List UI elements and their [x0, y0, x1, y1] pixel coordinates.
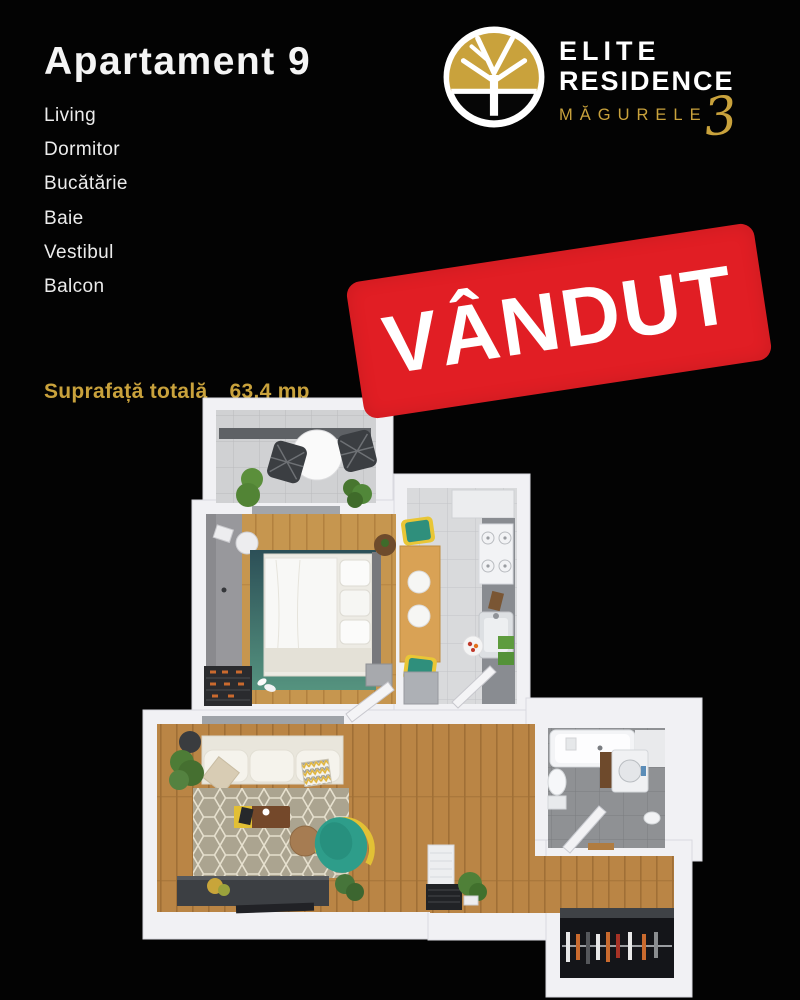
apartment-flyer: Apartament 9 Living Dormitor Bucătărie B…	[0, 0, 800, 1000]
floorplan	[0, 0, 800, 1000]
room-vestibul	[560, 908, 674, 964]
bath-sink	[644, 812, 660, 824]
sink	[479, 612, 513, 658]
bed	[264, 552, 381, 678]
fridge	[452, 490, 514, 518]
vegetable-box	[498, 652, 514, 665]
food-plate	[463, 636, 483, 656]
washing-machine	[600, 750, 648, 792]
kitchen-chair	[400, 516, 435, 546]
vegetable-box	[498, 636, 514, 649]
zigzag-pillow	[301, 759, 331, 787]
stove	[479, 524, 513, 584]
shoe-rack	[204, 666, 252, 706]
kitchen-table	[400, 546, 440, 662]
floor-lamp	[179, 731, 201, 753]
plant	[236, 483, 260, 507]
shoe-bench	[426, 884, 462, 910]
coffee-table	[234, 806, 290, 828]
kitchen-cabinet	[404, 672, 438, 704]
toilet	[548, 769, 566, 809]
